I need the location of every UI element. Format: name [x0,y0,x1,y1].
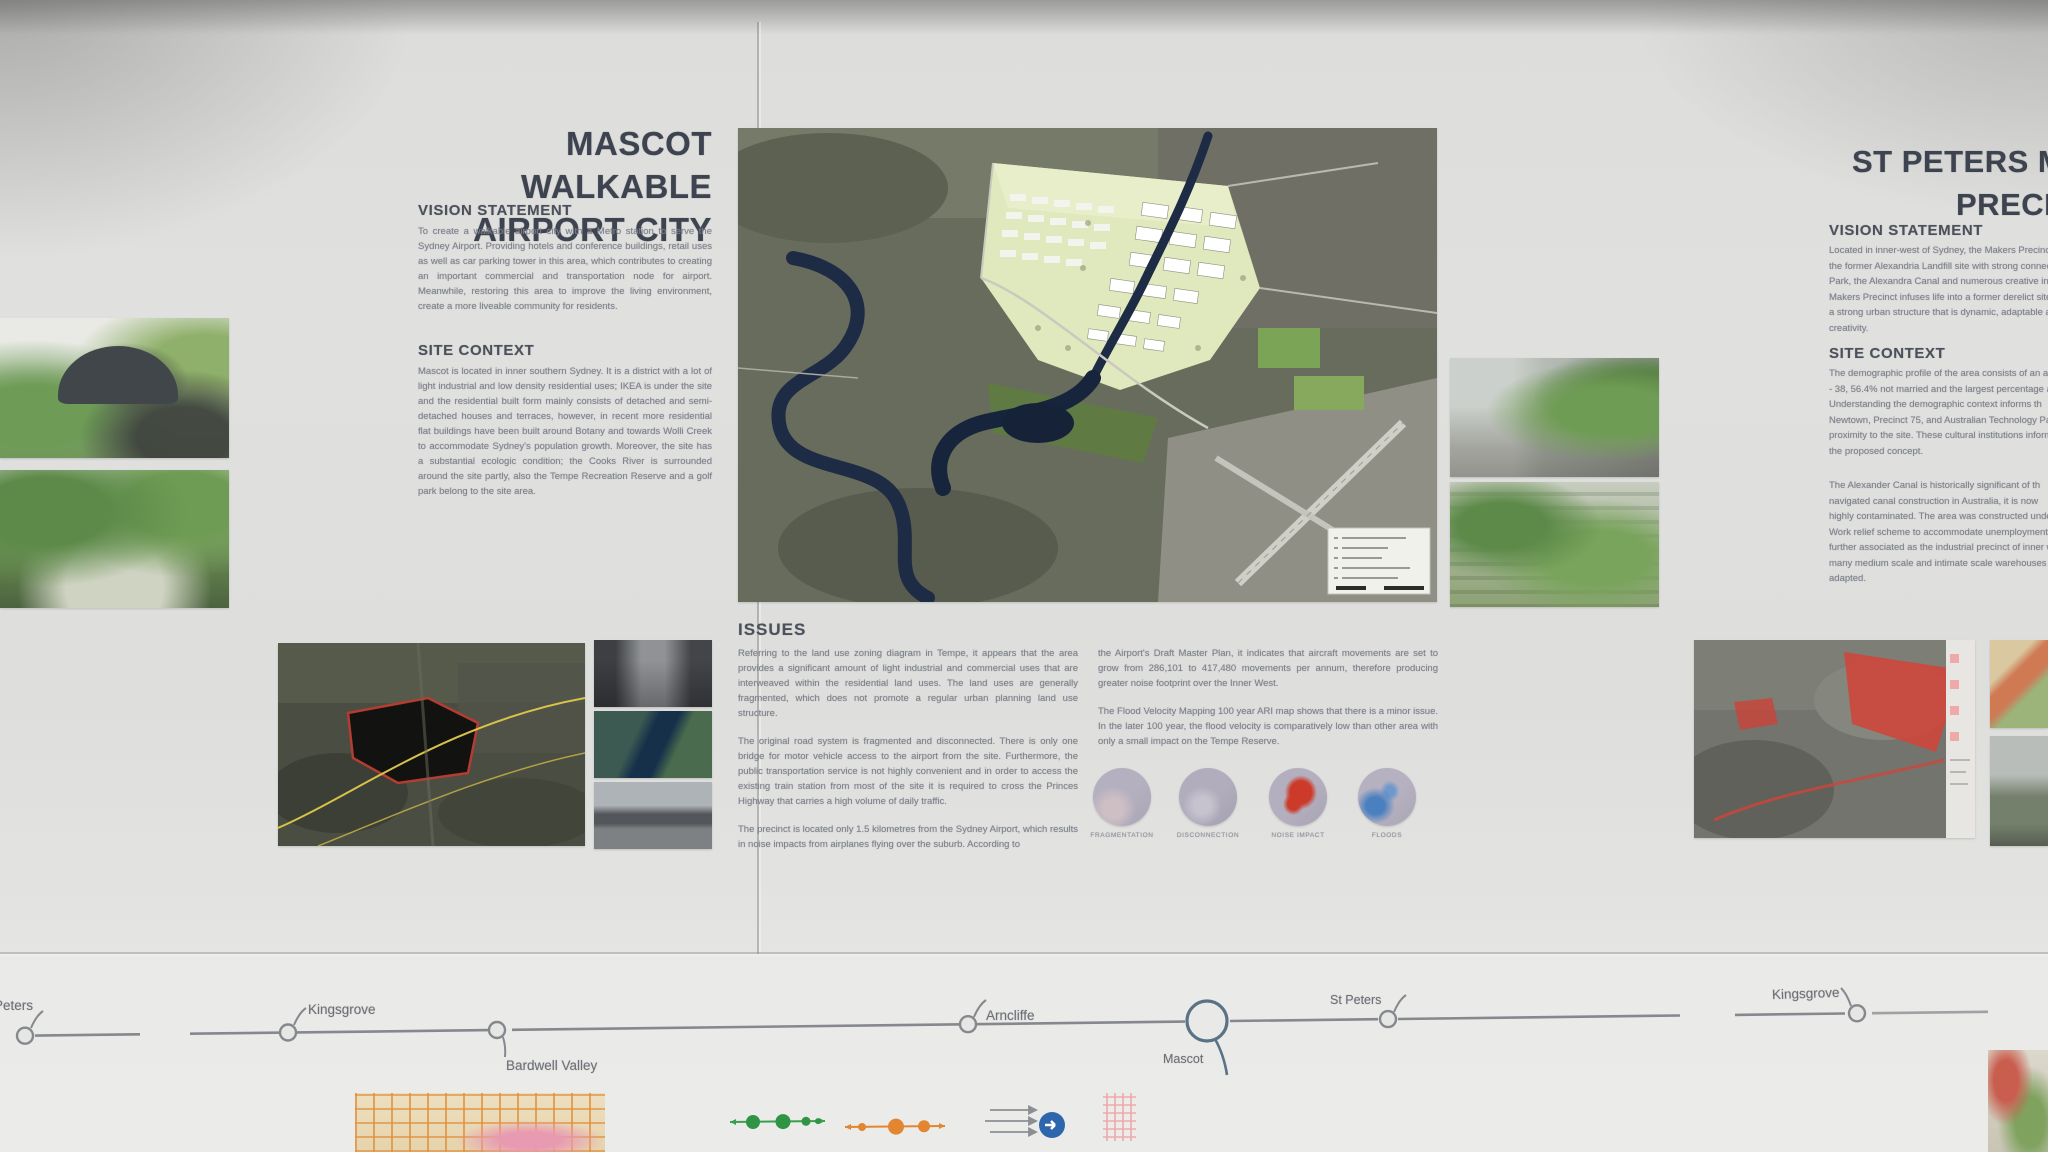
text-line: proximity to the site. These cultural in… [1829,428,2048,444]
diagram-label-floods: FLOODS [1343,832,1431,839]
text-line: The Alexander Canal is historically sign… [1829,478,2048,494]
mascot-context-heading: SITE CONTEXT [418,342,534,359]
text-line: Work relief scheme to accommodate unempl… [1829,525,2048,541]
render-image-park [0,470,229,608]
site-satellite-image [278,643,585,846]
issues-heading: ISSUES [738,620,806,640]
analysis-aerial-montage [1694,640,1975,838]
issue-diagram-fragmentation [1093,768,1151,826]
stpeters-title-line1: ST PETERS MAKERS [1852,140,2048,183]
issues-paragraph: The original road system is fragmented a… [738,734,1078,809]
edge-image-photo [1990,736,2048,846]
station-label-kingsgrove: Kingsgrove [308,1002,376,1017]
diagram-label-disconnection: DISCONNECTION [1164,832,1252,839]
stpeters-context-text-1: The demographic profile of the area cons… [1829,366,2048,459]
text-line: Makers Precinct infuses life into a form… [1829,290,2048,306]
flow-arrows-icon [985,1107,1036,1136]
text-line: adapted. [1829,571,2048,587]
text-line: Located in inner-west of Sydney, the Mak… [1829,243,2048,259]
pavilion-canopy-shape [58,346,178,404]
photo-street-scene [594,640,712,707]
stpeters-title-line2: PRECINCT [1852,183,2048,226]
station-dot-mascot [1187,1001,1227,1041]
legend-icons-row [700,1085,1160,1152]
stpeters-title: ST PETERS MAKERS PRECINCT [1852,140,2048,226]
text-line: many medium scale and intimate scale war… [1829,556,2048,572]
text-line: Newtown, Precinct 75, and Australian Tec… [1829,413,2048,429]
text-line: creativity. [1829,321,2048,337]
issue-diagram-floods [1358,768,1416,826]
orange-transit-line-icon [845,1119,945,1135]
render-image-pavilion [0,318,229,458]
station-label-arncliffe: Arncliffe [986,1008,1035,1023]
station-label-kingsgrove-2: Kingsgrove [1772,985,1840,1002]
render-image-green-building [1450,482,1659,607]
text-line: a strong urban structure that is dynamic… [1829,305,2048,321]
station-dot-bardwell-valley [489,1022,505,1038]
green-transit-line-icon [730,1114,825,1129]
station-dot-arncliffe [960,1016,976,1032]
diagram-label-fragmentation: FRAGMENTATION [1078,832,1166,839]
issue-diagram-disconnection [1179,768,1237,826]
photo-bridge-scene [594,782,712,849]
mascot-title-line1: MASCOT WALKABLE [380,122,712,208]
text-line: - 38, 56.4% not married and the largest … [1829,382,2048,398]
issues-paragraph: The Flood Velocity Mapping 100 year ARI … [1098,704,1438,749]
mascot-context-text: Mascot is located in inner southern Sydn… [418,364,712,499]
photo-river-aerial [594,711,712,778]
stpeters-context-text-2: The Alexander Canal is historically sign… [1829,478,2048,587]
text-line: further associated as the industrial pre… [1829,540,2048,556]
presentation-board-photo: MASCOT WALKABLE AIRPORT CITY VISION STAT… [0,0,2048,1152]
map-legend-box [1328,528,1430,594]
issue-diagram-noise [1269,768,1327,826]
bottom-map-sliver-right [1988,1050,2048,1152]
station-label-mascot: Mascot [1163,1052,1203,1066]
text-line: Understanding the demographic context in… [1829,397,2048,413]
station-dot-kingsgrove-2 [1849,1005,1865,1021]
issues-paragraph: the Airport's Draft Master Plan, it indi… [1098,646,1438,691]
stpeters-vision-text: Located in inner-west of Sydney, the Mak… [1829,243,2048,336]
stpeters-vision-heading: VISION STATEMENT [1829,222,1983,239]
text-line: the former Alexandria Landfill site with… [1829,259,2048,275]
text-line: navigated canal construction in Australi… [1829,494,2048,510]
issues-paragraph: The precinct is located only 1.5 kilomet… [738,822,1078,852]
blue-direction-icon [1039,1112,1065,1138]
station-label-st-peters: St Peters [1330,993,1381,1007]
render-image-street [1450,358,1659,477]
bottom-map-sliver-left [355,1093,605,1152]
masterplan-aerial-map [738,128,1437,602]
station-dot-peters [17,1028,33,1044]
board-seam-horizontal [0,952,2048,954]
station-dot-st-peters [1380,1011,1396,1027]
mascot-vision-heading: VISION STATEMENT [418,202,572,219]
pink-hatch-area-icon [1103,1093,1136,1141]
text-line: the proposed concept. [1829,444,2048,460]
text-line: The demographic profile of the area cons… [1829,366,2048,382]
station-label-peters: Peters [0,998,33,1013]
diagram-label-noise: NOISE IMPACT [1254,832,1342,839]
mascot-vision-text: To create a walkable airport city with a… [418,224,712,314]
text-line: Park, the Alexandra Canal and numerous c… [1829,274,2048,290]
photo-corner-shadow-left [0,0,420,260]
issues-column-2: the Airport's Draft Master Plan, it indi… [1098,646,1438,762]
text-line: highly contaminated. The area was constr… [1829,509,2048,525]
edge-image-map [1990,640,2048,728]
issues-paragraph: Referring to the land use zoning diagram… [738,646,1078,721]
station-dot-kingsgrove [280,1025,296,1041]
issues-column-1: Referring to the land use zoning diagram… [738,646,1078,865]
station-label-bardwell-valley: Bardwell Valley [506,1058,597,1073]
stpeters-context-heading: SITE CONTEXT [1829,345,1945,362]
